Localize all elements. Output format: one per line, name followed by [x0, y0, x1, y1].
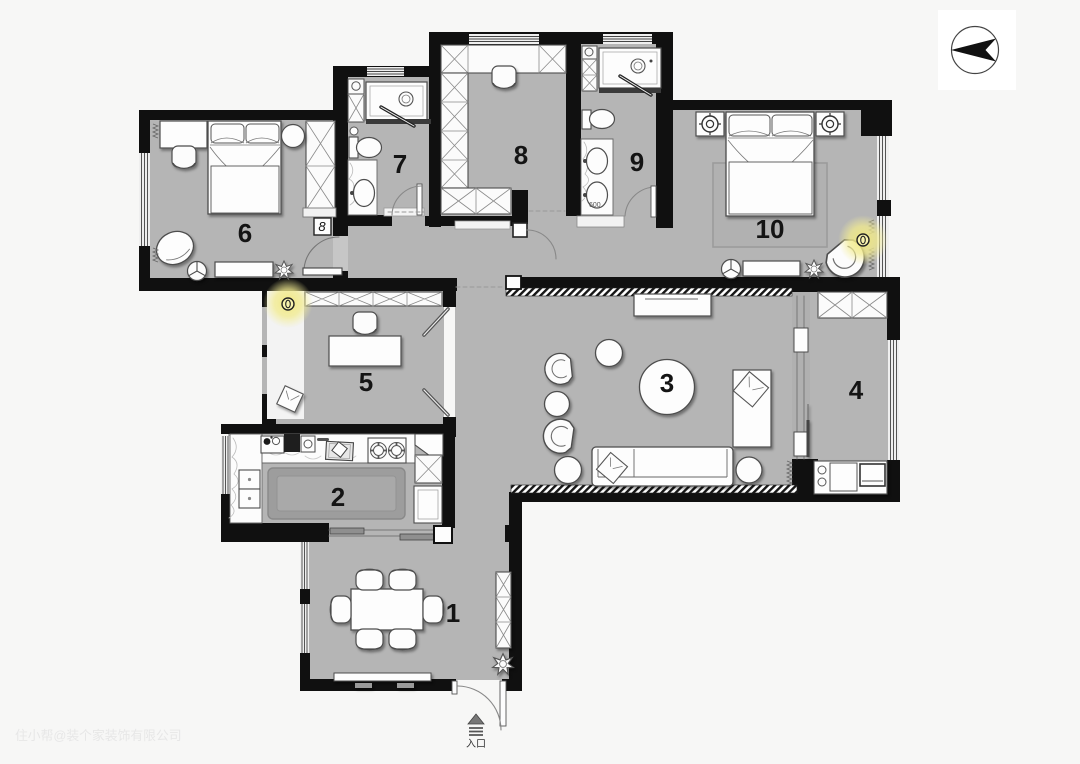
- svg-text:8: 8: [514, 140, 528, 170]
- svg-text:1: 1: [446, 598, 460, 628]
- svg-text:5: 5: [359, 367, 373, 397]
- svg-text:3: 3: [660, 368, 674, 398]
- svg-text:8: 8: [318, 219, 326, 234]
- svg-text:住小帮@装个家装饰有限公司: 住小帮@装个家装饰有限公司: [15, 728, 182, 743]
- svg-text:入口: 入口: [466, 739, 486, 750]
- svg-text:6: 6: [238, 218, 252, 248]
- svg-text:2: 2: [331, 482, 345, 512]
- svg-text:9: 9: [630, 147, 644, 177]
- svg-text:4: 4: [849, 375, 864, 405]
- svg-text:7: 7: [393, 149, 407, 179]
- svg-text:600: 600: [589, 202, 601, 209]
- svg-text:10: 10: [756, 214, 785, 244]
